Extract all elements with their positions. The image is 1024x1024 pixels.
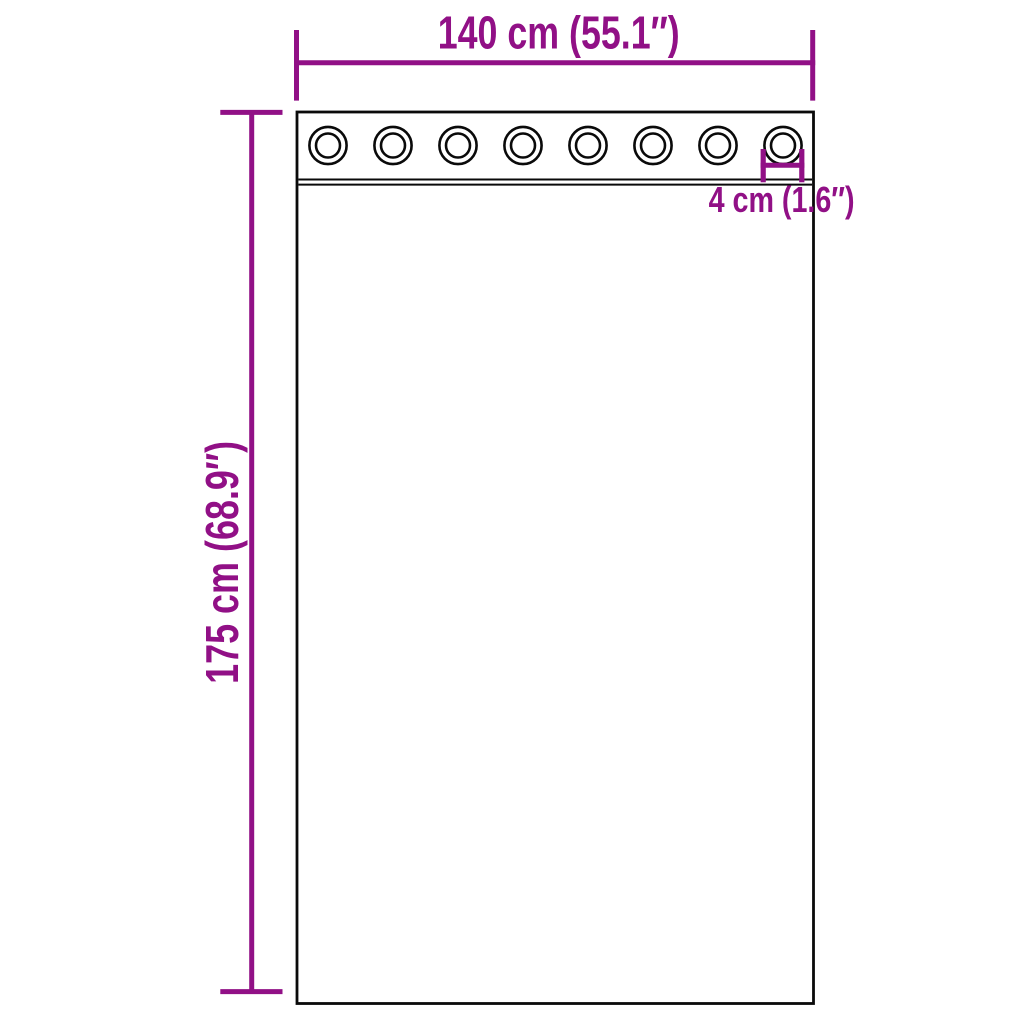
- svg-text:4 cm (1.6″): 4 cm (1.6″): [709, 179, 855, 220]
- svg-text:140 cm (55.1″): 140 cm (55.1″): [438, 7, 680, 59]
- svg-text:175 cm (68.9″): 175 cm (68.9″): [196, 441, 248, 684]
